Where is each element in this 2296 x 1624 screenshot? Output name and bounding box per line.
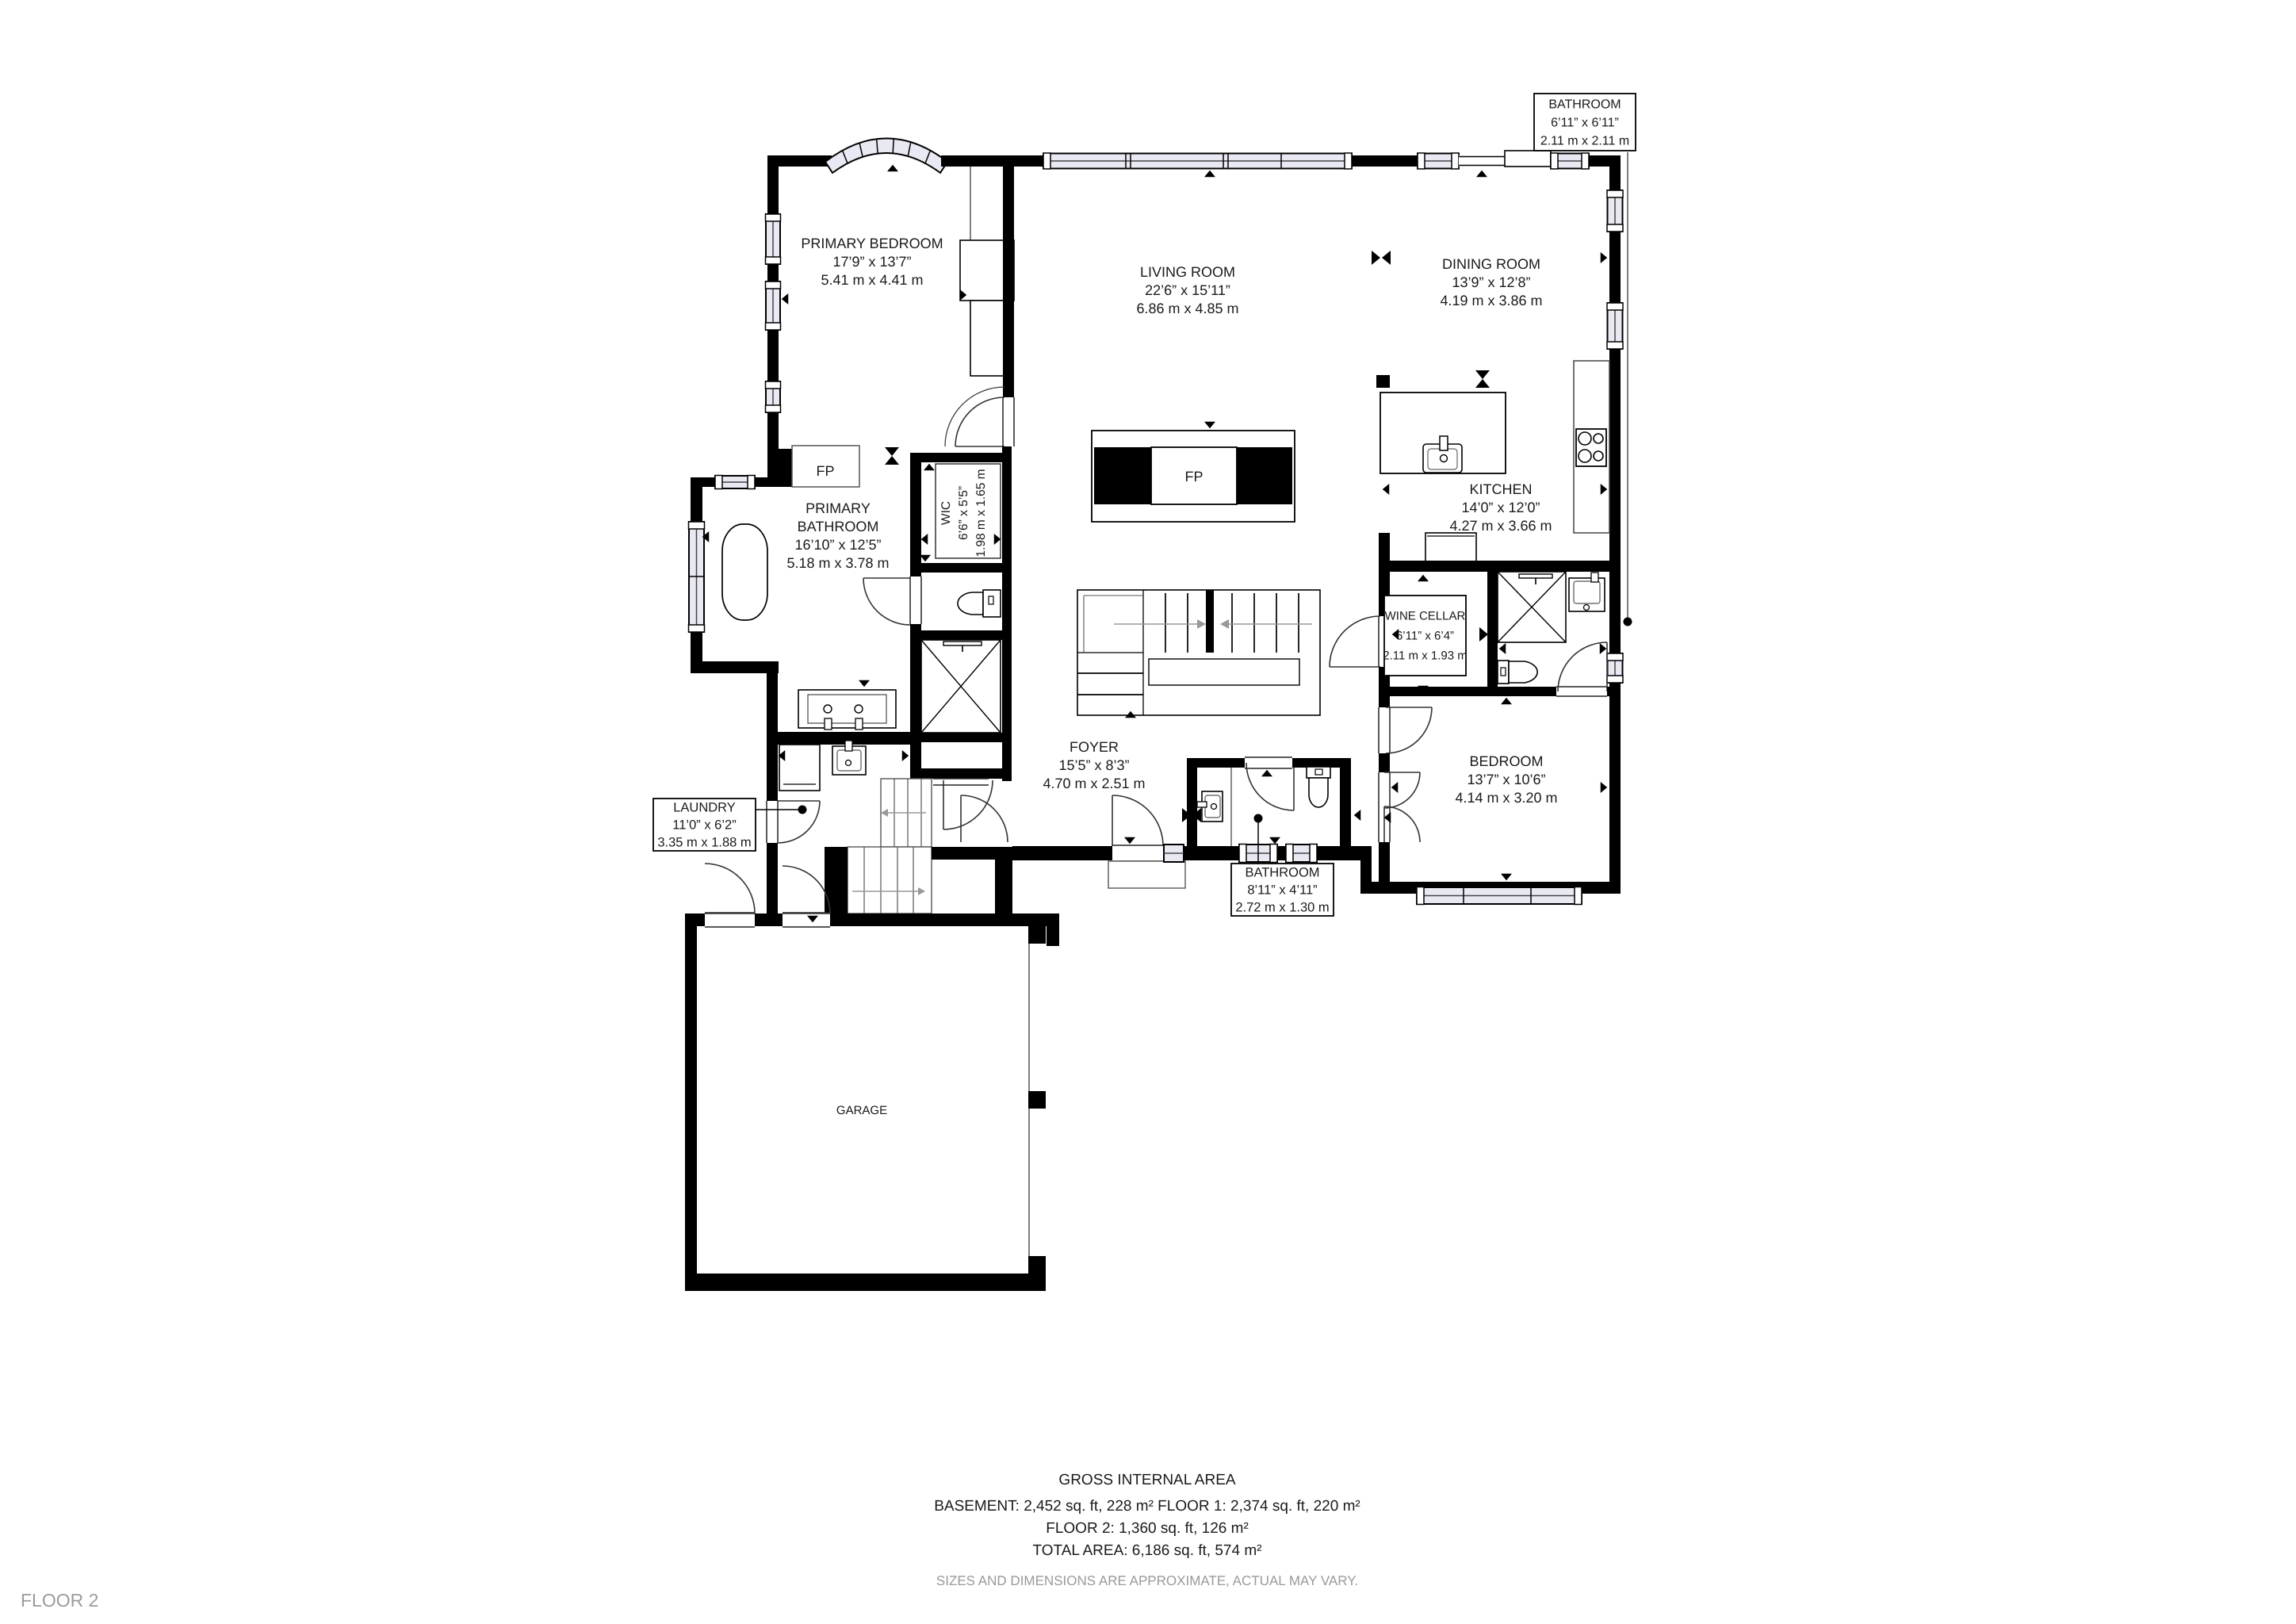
svg-text:GROSS INTERNAL AREA: GROSS INTERNAL AREA bbox=[1058, 1472, 1235, 1488]
svg-text:4.14 m x 3.20 m: 4.14 m x 3.20 m bbox=[1455, 790, 1557, 806]
svg-text:SIZES AND DIMENSIONS ARE APPRO: SIZES AND DIMENSIONS ARE APPROXIMATE, AC… bbox=[936, 1573, 1358, 1588]
svg-text:14’0” x 12’0”: 14’0” x 12’0” bbox=[1461, 500, 1540, 515]
svg-text:LIVING ROOM: LIVING ROOM bbox=[1140, 264, 1235, 280]
svg-text:8’11” x 4’11”: 8’11” x 4’11” bbox=[1247, 883, 1317, 898]
svg-text:22’6” x 15’11”: 22’6” x 15’11” bbox=[1145, 282, 1230, 298]
svg-text:6’6” x 5’5”: 6’6” x 5’5” bbox=[957, 486, 970, 540]
svg-text:LAUNDRY: LAUNDRY bbox=[673, 801, 736, 815]
svg-text:PRIMARY BEDROOM: PRIMARY BEDROOM bbox=[801, 236, 943, 251]
svg-text:4.19 m x 3.86 m: 4.19 m x 3.86 m bbox=[1440, 293, 1542, 308]
svg-text:5.41 m x 4.41 m: 5.41 m x 4.41 m bbox=[821, 272, 923, 288]
svg-text:KITCHEN: KITCHEN bbox=[1469, 481, 1532, 497]
svg-text:FOYER: FOYER bbox=[1070, 739, 1119, 755]
svg-text:1.98 m x 1.65 m: 1.98 m x 1.65 m bbox=[974, 469, 988, 557]
svg-text:16’10” x 12’5”: 16’10” x 12’5” bbox=[794, 537, 881, 553]
svg-text:FLOOR 2: FLOOR 2 bbox=[21, 1590, 98, 1611]
svg-text:FLOOR 2: 1,360 sq. ft, 126 m²: FLOOR 2: 1,360 sq. ft, 126 m² bbox=[1046, 1520, 1249, 1537]
svg-text:BEDROOM: BEDROOM bbox=[1469, 753, 1543, 769]
svg-text:WIC: WIC bbox=[939, 501, 953, 525]
svg-text:WINE CELLAR: WINE CELLAR bbox=[1385, 610, 1466, 623]
svg-text:BATHROOM: BATHROOM bbox=[1548, 98, 1621, 111]
svg-text:PRIMARY: PRIMARY bbox=[806, 500, 871, 516]
svg-text:GARAGE: GARAGE bbox=[836, 1104, 887, 1117]
svg-text:5.18 m x 3.78 m: 5.18 m x 3.78 m bbox=[786, 555, 889, 571]
svg-text:11’0” x 6’2”: 11’0” x 6’2” bbox=[672, 818, 736, 833]
svg-text:13’7” x 10’6”: 13’7” x 10’6” bbox=[1467, 772, 1545, 787]
svg-text:6’11” x 6’11”: 6’11” x 6’11” bbox=[1551, 116, 1619, 129]
svg-text:4.27 m x 3.66 m: 4.27 m x 3.66 m bbox=[1449, 518, 1552, 534]
svg-text:TOTAL AREA: 6,186 sq. ft, 574: TOTAL AREA: 6,186 sq. ft, 574 m² bbox=[1033, 1542, 1262, 1559]
svg-text:15’5” x 8’3”: 15’5” x 8’3” bbox=[1058, 757, 1129, 773]
svg-text:2.11 m x 1.93 m: 2.11 m x 1.93 m bbox=[1383, 649, 1467, 663]
svg-text:FP: FP bbox=[1184, 469, 1203, 485]
svg-text:13’9” x 12’8”: 13’9” x 12’8” bbox=[1452, 274, 1530, 290]
svg-text:6.86 m x 4.85 m: 6.86 m x 4.85 m bbox=[1136, 301, 1238, 316]
svg-text:DINING ROOM: DINING ROOM bbox=[1442, 256, 1540, 272]
svg-text:BATHROOM: BATHROOM bbox=[798, 519, 879, 534]
svg-text:4.70 m x 2.51 m: 4.70 m x 2.51 m bbox=[1043, 776, 1145, 791]
svg-text:BASEMENT: 2,452 sq. ft, 228 m²: BASEMENT: 2,452 sq. ft, 228 m² FLOOR 1: … bbox=[934, 1498, 1360, 1515]
svg-text:17’9” x 13’7”: 17’9” x 13’7” bbox=[832, 254, 911, 270]
svg-text:3.35 m x 1.88 m: 3.35 m x 1.88 m bbox=[657, 836, 751, 850]
svg-text:6’11” x 6’4”: 6’11” x 6’4” bbox=[1396, 630, 1454, 643]
svg-text:BATHROOM: BATHROOM bbox=[1245, 866, 1319, 880]
svg-text:FP: FP bbox=[816, 463, 834, 479]
svg-text:2.11 m x 2.11 m: 2.11 m x 2.11 m bbox=[1540, 134, 1629, 147]
svg-text:2.72 m x 1.30 m: 2.72 m x 1.30 m bbox=[1235, 901, 1329, 915]
